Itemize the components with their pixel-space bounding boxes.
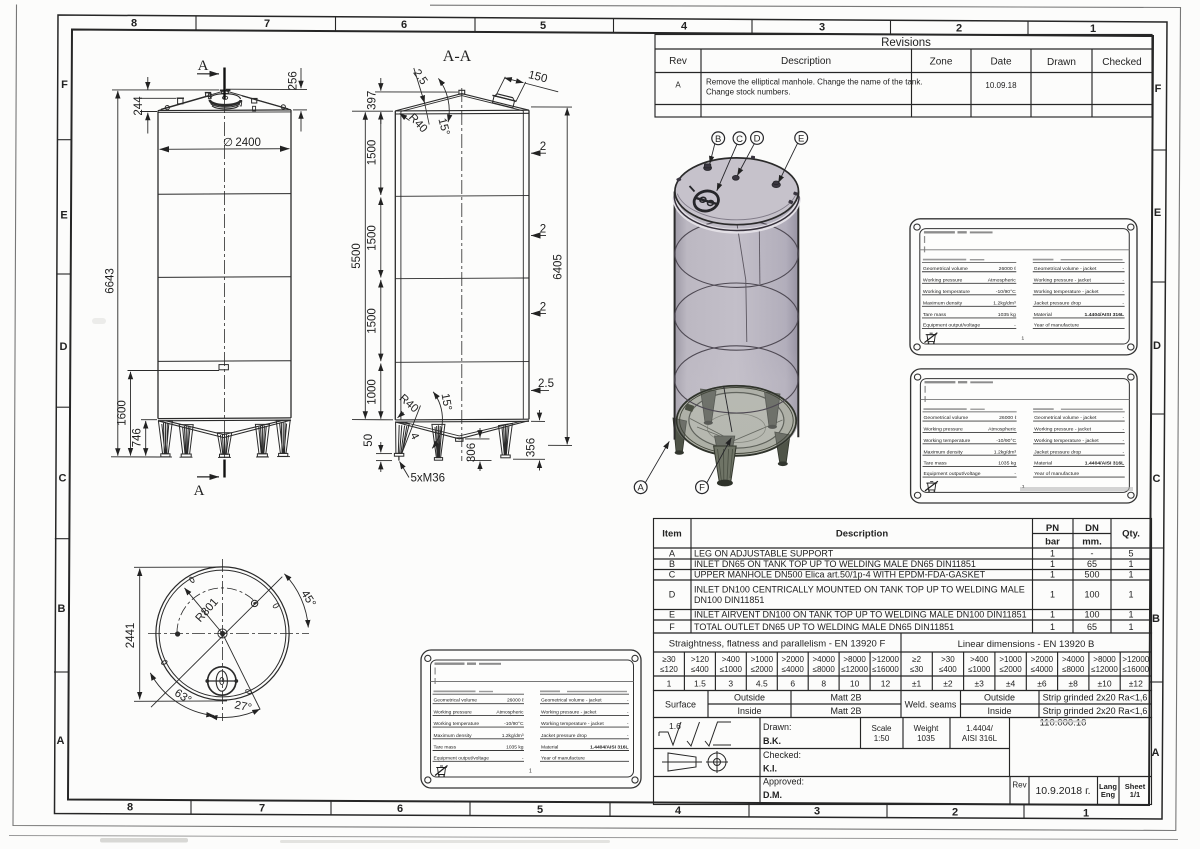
- svg-text:65: 65: [1087, 559, 1097, 569]
- svg-text:1: 1: [1128, 559, 1133, 569]
- svg-text:≤30: ≤30: [910, 665, 924, 674]
- svg-text:6: 6: [790, 679, 795, 689]
- svg-text:≤4000: ≤4000: [782, 665, 805, 674]
- svg-text:D: D: [60, 341, 68, 353]
- svg-text:B: B: [669, 559, 675, 569]
- svg-text:Strip grinded 2x20 Ra<1,6: Strip grinded 2x20 Ra<1,6: [1043, 693, 1148, 703]
- svg-text:5: 5: [537, 804, 543, 816]
- svg-text:1/1: 1/1: [1130, 790, 1140, 799]
- svg-text:5: 5: [540, 20, 546, 32]
- svg-text:50: 50: [363, 434, 375, 447]
- svg-text:F: F: [61, 79, 68, 91]
- svg-text:3: 3: [814, 806, 820, 818]
- svg-text:±6: ±6: [1037, 679, 1047, 689]
- svg-text:356: 356: [525, 438, 537, 457]
- svg-text:Date: Date: [990, 57, 1012, 68]
- svg-text:>2000: >2000: [781, 655, 804, 664]
- svg-text:110.000.10: 110.000.10: [1040, 718, 1087, 729]
- svg-text:K.I.: K.I.: [763, 764, 777, 774]
- svg-text:Scale: Scale: [871, 724, 892, 733]
- svg-text:A-A: A-A: [443, 48, 472, 65]
- svg-text:>8000: >8000: [1093, 655, 1116, 664]
- svg-text:1: 1: [1083, 807, 1089, 819]
- svg-text:Description: Description: [781, 56, 831, 67]
- svg-text:256: 256: [288, 71, 300, 90]
- svg-text:B: B: [1152, 613, 1160, 625]
- svg-text:Outside: Outside: [734, 693, 765, 703]
- svg-text:306: 306: [466, 443, 478, 462]
- svg-text:AISI 316L: AISI 316L: [962, 734, 998, 743]
- svg-text:≤8000: ≤8000: [813, 665, 836, 674]
- svg-text:Matt 2B: Matt 2B: [830, 693, 861, 703]
- svg-text:1: 1: [1050, 549, 1055, 559]
- svg-text:D: D: [669, 590, 676, 600]
- svg-text:8: 8: [131, 17, 137, 29]
- svg-text:1: 1: [1050, 559, 1055, 569]
- svg-text:1: 1: [1050, 590, 1055, 600]
- svg-text:Item: Item: [662, 529, 682, 540]
- svg-text:D: D: [754, 133, 761, 144]
- svg-text:1500: 1500: [366, 140, 378, 166]
- svg-text:>1000: >1000: [999, 655, 1022, 664]
- svg-text:Linear dimensions - EN 13920 B: Linear dimensions - EN 13920 B: [958, 639, 1095, 650]
- svg-text:1500: 1500: [366, 308, 378, 334]
- svg-text:Revisions: Revisions: [881, 37, 931, 49]
- svg-text:2.5: 2.5: [538, 378, 554, 390]
- svg-text:F: F: [699, 483, 705, 494]
- svg-text:1: 1: [1050, 570, 1055, 580]
- svg-text:5xM36: 5xM36: [411, 473, 446, 485]
- svg-text:65: 65: [1087, 622, 1097, 632]
- svg-text:±12: ±12: [1129, 679, 1143, 689]
- svg-text:E: E: [669, 610, 675, 620]
- svg-text:7: 7: [259, 802, 265, 814]
- svg-text:244: 244: [133, 96, 145, 116]
- svg-text:INLET AIRVENT DN100 ON TANK TO: INLET AIRVENT DN100 ON TANK TOP UP TO WE…: [694, 610, 1027, 620]
- svg-text:1: 1: [1050, 622, 1055, 632]
- svg-text:1: 1: [1128, 570, 1133, 580]
- svg-text:Outside: Outside: [984, 693, 1015, 703]
- svg-text:±4: ±4: [1006, 679, 1016, 689]
- svg-text:A: A: [1152, 747, 1160, 759]
- svg-text:1500: 1500: [366, 225, 378, 251]
- svg-text:2: 2: [956, 22, 962, 34]
- svg-text:10.09.18: 10.09.18: [985, 81, 1017, 90]
- svg-text:100: 100: [1084, 590, 1099, 600]
- svg-text:Strip grinded 2x20 Ra<1,6: Strip grinded 2x20 Ra<1,6: [1043, 706, 1148, 716]
- svg-text:A: A: [675, 81, 681, 90]
- svg-text:>1000: >1000: [751, 655, 774, 664]
- svg-text:INLET DN65 ON TANK TOP UP TO W: INLET DN65 ON TANK TOP UP TO WELDING MAL…: [694, 559, 976, 569]
- svg-text:D.M.: D.M.: [763, 790, 782, 800]
- svg-text:±10: ±10: [1097, 679, 1111, 689]
- svg-text:12: 12: [881, 679, 891, 689]
- svg-text:Drawn:: Drawn:: [763, 722, 792, 732]
- svg-text:Straightness, flatness and par: Straightness, flatness and parallelism -…: [669, 639, 886, 650]
- svg-text:>400: >400: [722, 655, 741, 664]
- svg-text:2441: 2441: [125, 623, 137, 649]
- svg-text:±2: ±2: [943, 679, 953, 689]
- svg-text:±8: ±8: [1068, 679, 1078, 689]
- svg-text:1: 1: [1050, 610, 1055, 620]
- svg-text:3: 3: [728, 679, 733, 689]
- svg-text:TOTAL OUTLET DN65 UP TO WELDIN: TOTAL OUTLET DN65 UP TO WELDING MALE DN6…: [694, 622, 954, 632]
- svg-text:1: 1: [667, 679, 672, 689]
- svg-text:Weight: Weight: [914, 724, 940, 733]
- svg-text:A: A: [194, 483, 205, 499]
- svg-text:A: A: [669, 549, 675, 559]
- svg-text:>8000: >8000: [843, 655, 866, 664]
- svg-text:500: 500: [1084, 570, 1099, 580]
- svg-text:mm.: mm.: [1082, 537, 1102, 548]
- svg-text:≥30: ≥30: [662, 655, 676, 664]
- svg-text:E: E: [798, 133, 804, 144]
- svg-text:B: B: [58, 603, 66, 615]
- svg-text:1600: 1600: [116, 400, 128, 426]
- svg-text:>2000: >2000: [1031, 655, 1054, 664]
- svg-text:Checked: Checked: [1102, 57, 1141, 68]
- svg-text:D: D: [1153, 340, 1161, 352]
- svg-text:≤2000: ≤2000: [1000, 665, 1023, 674]
- svg-text:Matt 2B: Matt 2B: [830, 706, 861, 716]
- svg-text:≤4000: ≤4000: [1031, 665, 1054, 674]
- svg-text:>400: >400: [970, 655, 989, 664]
- svg-text:2: 2: [540, 141, 546, 153]
- svg-text:1: 1: [1090, 23, 1096, 35]
- svg-text:4: 4: [681, 21, 688, 33]
- svg-text:3: 3: [819, 22, 825, 34]
- svg-text:Zone: Zone: [930, 57, 953, 68]
- svg-text:10.9.2018 г.: 10.9.2018 г.: [1035, 785, 1090, 797]
- svg-text:bar: bar: [1045, 537, 1060, 548]
- svg-text:Approved:: Approved:: [763, 777, 804, 787]
- svg-text:5: 5: [1128, 549, 1133, 559]
- svg-text:1: 1: [1128, 622, 1133, 632]
- svg-text:>4000: >4000: [812, 655, 835, 664]
- svg-text:>30: >30: [941, 655, 955, 664]
- svg-text:UPPER MANHOLE DN500 Elica art.: UPPER MANHOLE DN500 Elica art.50/1p-4 WI…: [694, 570, 986, 580]
- svg-text:397: 397: [366, 91, 378, 110]
- svg-text:≤1000: ≤1000: [968, 665, 991, 674]
- svg-text:1: 1: [1128, 590, 1133, 600]
- svg-text:>120: >120: [691, 655, 710, 664]
- svg-text:C: C: [1153, 473, 1161, 485]
- svg-text:>12000: >12000: [1122, 655, 1149, 664]
- svg-text:10: 10: [850, 679, 860, 689]
- svg-text:4.5: 4.5: [756, 679, 768, 689]
- svg-text:∅ 2400: ∅ 2400: [223, 137, 261, 149]
- svg-text:2: 2: [540, 301, 546, 313]
- svg-text:B.K.: B.K.: [763, 736, 781, 746]
- svg-text:E: E: [1154, 207, 1161, 219]
- svg-text:Eng: Eng: [1101, 790, 1116, 799]
- svg-text:≤16000: ≤16000: [872, 665, 899, 674]
- svg-text:Drawn: Drawn: [1047, 57, 1076, 68]
- svg-text:A: A: [638, 483, 645, 494]
- svg-text:8: 8: [127, 802, 133, 814]
- svg-text:746: 746: [132, 428, 144, 447]
- svg-text:≥2: ≥2: [912, 655, 921, 664]
- svg-text:E: E: [60, 210, 67, 222]
- svg-text:≤400: ≤400: [939, 665, 957, 674]
- svg-text:DN: DN: [1085, 523, 1099, 534]
- svg-text:6: 6: [397, 803, 403, 815]
- svg-text:F: F: [669, 622, 675, 632]
- svg-text:1.6: 1.6: [669, 721, 681, 731]
- svg-text:Checked:: Checked:: [763, 750, 801, 760]
- svg-text:Change stock numbers.: Change stock numbers.: [706, 88, 791, 97]
- svg-text:A: A: [198, 58, 209, 74]
- svg-text:Rev: Rev: [669, 56, 687, 67]
- svg-text:Remove the elliptical manhole.: Remove the elliptical manhole. Change th…: [706, 78, 923, 87]
- svg-text:DN100 DIN11851: DN100 DIN11851: [694, 595, 764, 605]
- svg-text:100: 100: [1084, 610, 1099, 620]
- svg-text:≤2000: ≤2000: [751, 665, 774, 674]
- svg-text:LEG ON ADJUSTABLE SUPPORT: LEG ON ADJUSTABLE SUPPORT: [694, 549, 834, 559]
- svg-text:INLET DN100 CENTRICALLY MOUNTE: INLET DN100 CENTRICALLY MOUNTED ON TANK …: [694, 585, 1025, 595]
- svg-text:≤12000: ≤12000: [841, 665, 868, 674]
- svg-text:6643: 6643: [105, 268, 117, 294]
- svg-text:A: A: [57, 735, 65, 747]
- svg-text:Inside: Inside: [737, 706, 761, 716]
- svg-text:≤120: ≤120: [660, 665, 678, 674]
- svg-text:1.4404/: 1.4404/: [966, 724, 993, 733]
- svg-text:C: C: [59, 473, 67, 485]
- svg-text:Surface: Surface: [665, 700, 696, 710]
- svg-text:4: 4: [675, 805, 682, 817]
- svg-text:≤1000: ≤1000: [720, 665, 743, 674]
- svg-text:≤8000: ≤8000: [1062, 665, 1085, 674]
- svg-text:2: 2: [540, 223, 546, 235]
- svg-text:≤12000: ≤12000: [1091, 665, 1118, 674]
- svg-text:PN: PN: [1046, 523, 1059, 534]
- svg-text:6405: 6405: [553, 254, 565, 280]
- svg-text:1035: 1035: [917, 734, 935, 743]
- svg-text:6: 6: [401, 19, 407, 31]
- svg-text:-: -: [1091, 549, 1094, 559]
- svg-text:>12000: >12000: [872, 655, 899, 664]
- svg-text:C: C: [669, 570, 676, 580]
- svg-text:>4000: >4000: [1062, 655, 1085, 664]
- svg-text:2: 2: [952, 807, 958, 819]
- svg-text:≤400: ≤400: [691, 665, 709, 674]
- svg-text:Rev: Rev: [1012, 781, 1026, 790]
- svg-text:1:50: 1:50: [874, 734, 890, 743]
- svg-text:F: F: [1155, 83, 1162, 95]
- svg-text:8: 8: [821, 679, 826, 689]
- svg-text:B: B: [715, 134, 721, 145]
- svg-text:Weld. seams: Weld. seams: [905, 700, 957, 710]
- svg-text:±1: ±1: [912, 679, 922, 689]
- svg-text:C: C: [736, 134, 743, 145]
- svg-text:Inside: Inside: [987, 706, 1011, 716]
- svg-text:1: 1: [1128, 610, 1133, 620]
- svg-text:±3: ±3: [974, 679, 984, 689]
- svg-text:1.5: 1.5: [694, 679, 706, 689]
- svg-text:5500: 5500: [351, 243, 363, 269]
- svg-text:≤16000: ≤16000: [1122, 665, 1149, 674]
- svg-text:Description: Description: [836, 529, 888, 540]
- svg-text:7: 7: [264, 18, 270, 30]
- svg-text:Qty.: Qty.: [1122, 529, 1140, 540]
- svg-text:1000: 1000: [366, 379, 378, 405]
